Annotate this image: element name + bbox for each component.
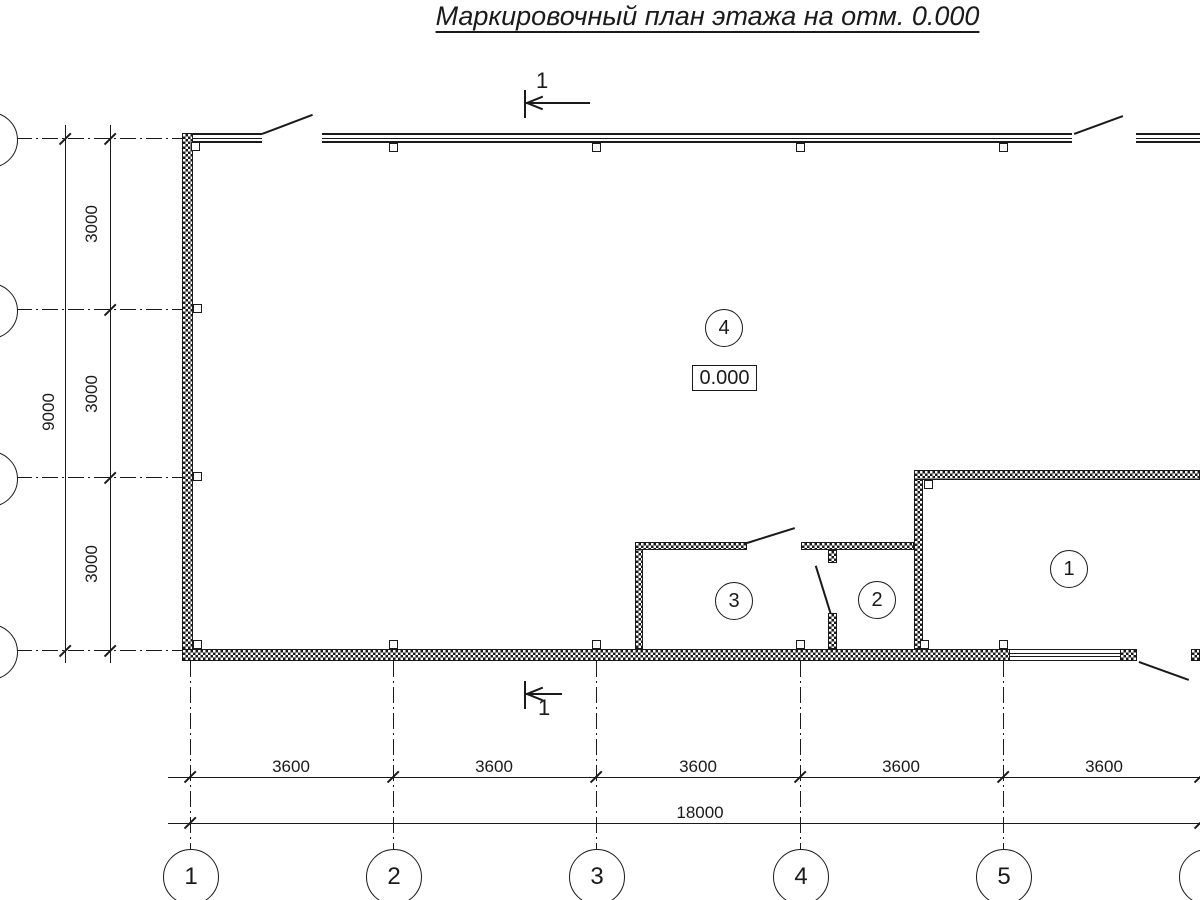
column-marker — [389, 143, 398, 152]
dimension-value: 3600 — [251, 757, 331, 777]
room-tag: 2 — [858, 581, 896, 619]
dimension-value: 3600 — [861, 757, 941, 777]
wall-room3-vertical — [635, 542, 643, 649]
door-leaf — [815, 566, 831, 614]
room-number: 4 — [718, 317, 729, 340]
room-number: 2 — [871, 589, 882, 612]
column-marker — [999, 143, 1008, 152]
axis-line — [1003, 661, 1004, 849]
axis-bubble-left: В — [0, 283, 18, 339]
dimension-value: 3000 — [82, 364, 102, 424]
wall-room2-top — [801, 542, 914, 550]
axis-line — [16, 309, 182, 310]
column-marker — [193, 304, 202, 313]
axis-line — [16, 138, 182, 139]
floor-plan-drawing: Маркировочный план этажа на отм. 0.000 1… — [0, 0, 1200, 900]
dimension-line-horizontal — [168, 777, 1200, 778]
door-leaf — [747, 527, 795, 543]
room-tag: 3 — [715, 582, 753, 620]
axis-bubble-bottom: 3 — [569, 849, 625, 900]
room-number: 1 — [1063, 558, 1074, 581]
dimension-value: 3600 — [658, 757, 738, 777]
axis-label: 2 — [387, 863, 400, 891]
wall-partition-stub-bottom — [828, 613, 837, 649]
column-marker — [999, 640, 1008, 649]
column-marker — [796, 143, 805, 152]
elevation-mark: 0.000 — [692, 365, 757, 391]
axis-bubble-bottom: 5 — [976, 849, 1032, 900]
axis-bubble-left: Б — [0, 451, 18, 507]
column-marker — [191, 142, 200, 151]
axis-label: 5 — [997, 863, 1010, 891]
section-number-top: 1 — [536, 68, 548, 94]
column-marker — [924, 480, 933, 489]
wall-partition-stub-top — [828, 550, 837, 563]
dimension-value: 3600 — [1064, 757, 1144, 777]
axis-bubble-left: Г — [0, 112, 18, 168]
door-leaf — [262, 114, 313, 135]
window-top-segment — [1136, 133, 1200, 143]
room-number: 3 — [728, 590, 739, 613]
section-mark-top-line — [526, 102, 590, 104]
column-marker — [592, 640, 601, 649]
dimension-line-vertical — [65, 125, 66, 663]
axis-label: 4 — [794, 863, 807, 891]
axis-bubble-left: А — [0, 624, 18, 680]
column-marker — [193, 640, 202, 649]
window-top-segment — [322, 133, 1072, 143]
dimension-value: 3600 — [454, 757, 534, 777]
column-marker — [592, 143, 601, 152]
axis-bubble-bottom: 1 — [163, 849, 219, 900]
room-tag: 1 — [1050, 550, 1088, 588]
dimension-value: 3000 — [82, 194, 102, 254]
axis-line — [16, 477, 182, 478]
window-top-segment — [193, 133, 262, 143]
axis-line — [800, 661, 801, 849]
door-leaf — [1074, 115, 1123, 134]
column-marker — [193, 472, 202, 481]
dimension-line-horizontal — [168, 823, 1200, 824]
axis-label: 1 — [184, 863, 197, 891]
dimension-total: 18000 — [660, 803, 740, 823]
dimension-line-vertical — [110, 125, 111, 663]
section-mark-bottom-bar — [524, 681, 526, 709]
window-bottom — [1010, 649, 1120, 661]
axis-line — [596, 661, 597, 849]
column-marker — [796, 640, 805, 649]
wall-room3-top — [635, 542, 747, 550]
section-number-bottom: 1 — [538, 695, 550, 721]
axis-line — [16, 650, 182, 651]
door-leaf — [1139, 661, 1189, 680]
wall-bottom-stub — [1120, 649, 1137, 661]
page-title: Маркировочный план этажа на отм. 0.000 — [420, 1, 995, 32]
dimension-total: 9000 — [39, 382, 59, 442]
wall-bottom — [182, 649, 1010, 661]
axis-bubble-bottom: 6 — [1179, 849, 1200, 900]
section-mark-top-bar — [524, 90, 526, 118]
column-marker — [920, 640, 929, 649]
axis-bubble-bottom: 4 — [773, 849, 829, 900]
room-tag: 4 — [705, 309, 743, 347]
wall-left — [182, 133, 193, 661]
dimension-value: 3000 — [82, 534, 102, 594]
axis-line — [393, 661, 394, 849]
wall-room1-horizontal — [914, 470, 1200, 480]
elevation-value: 0.000 — [699, 367, 749, 390]
axis-bubble-bottom: 2 — [366, 849, 422, 900]
wall-room1-vertical — [914, 470, 923, 649]
axis-label: 3 — [590, 863, 603, 891]
column-marker — [389, 640, 398, 649]
wall-bottom-corner — [1191, 649, 1200, 661]
